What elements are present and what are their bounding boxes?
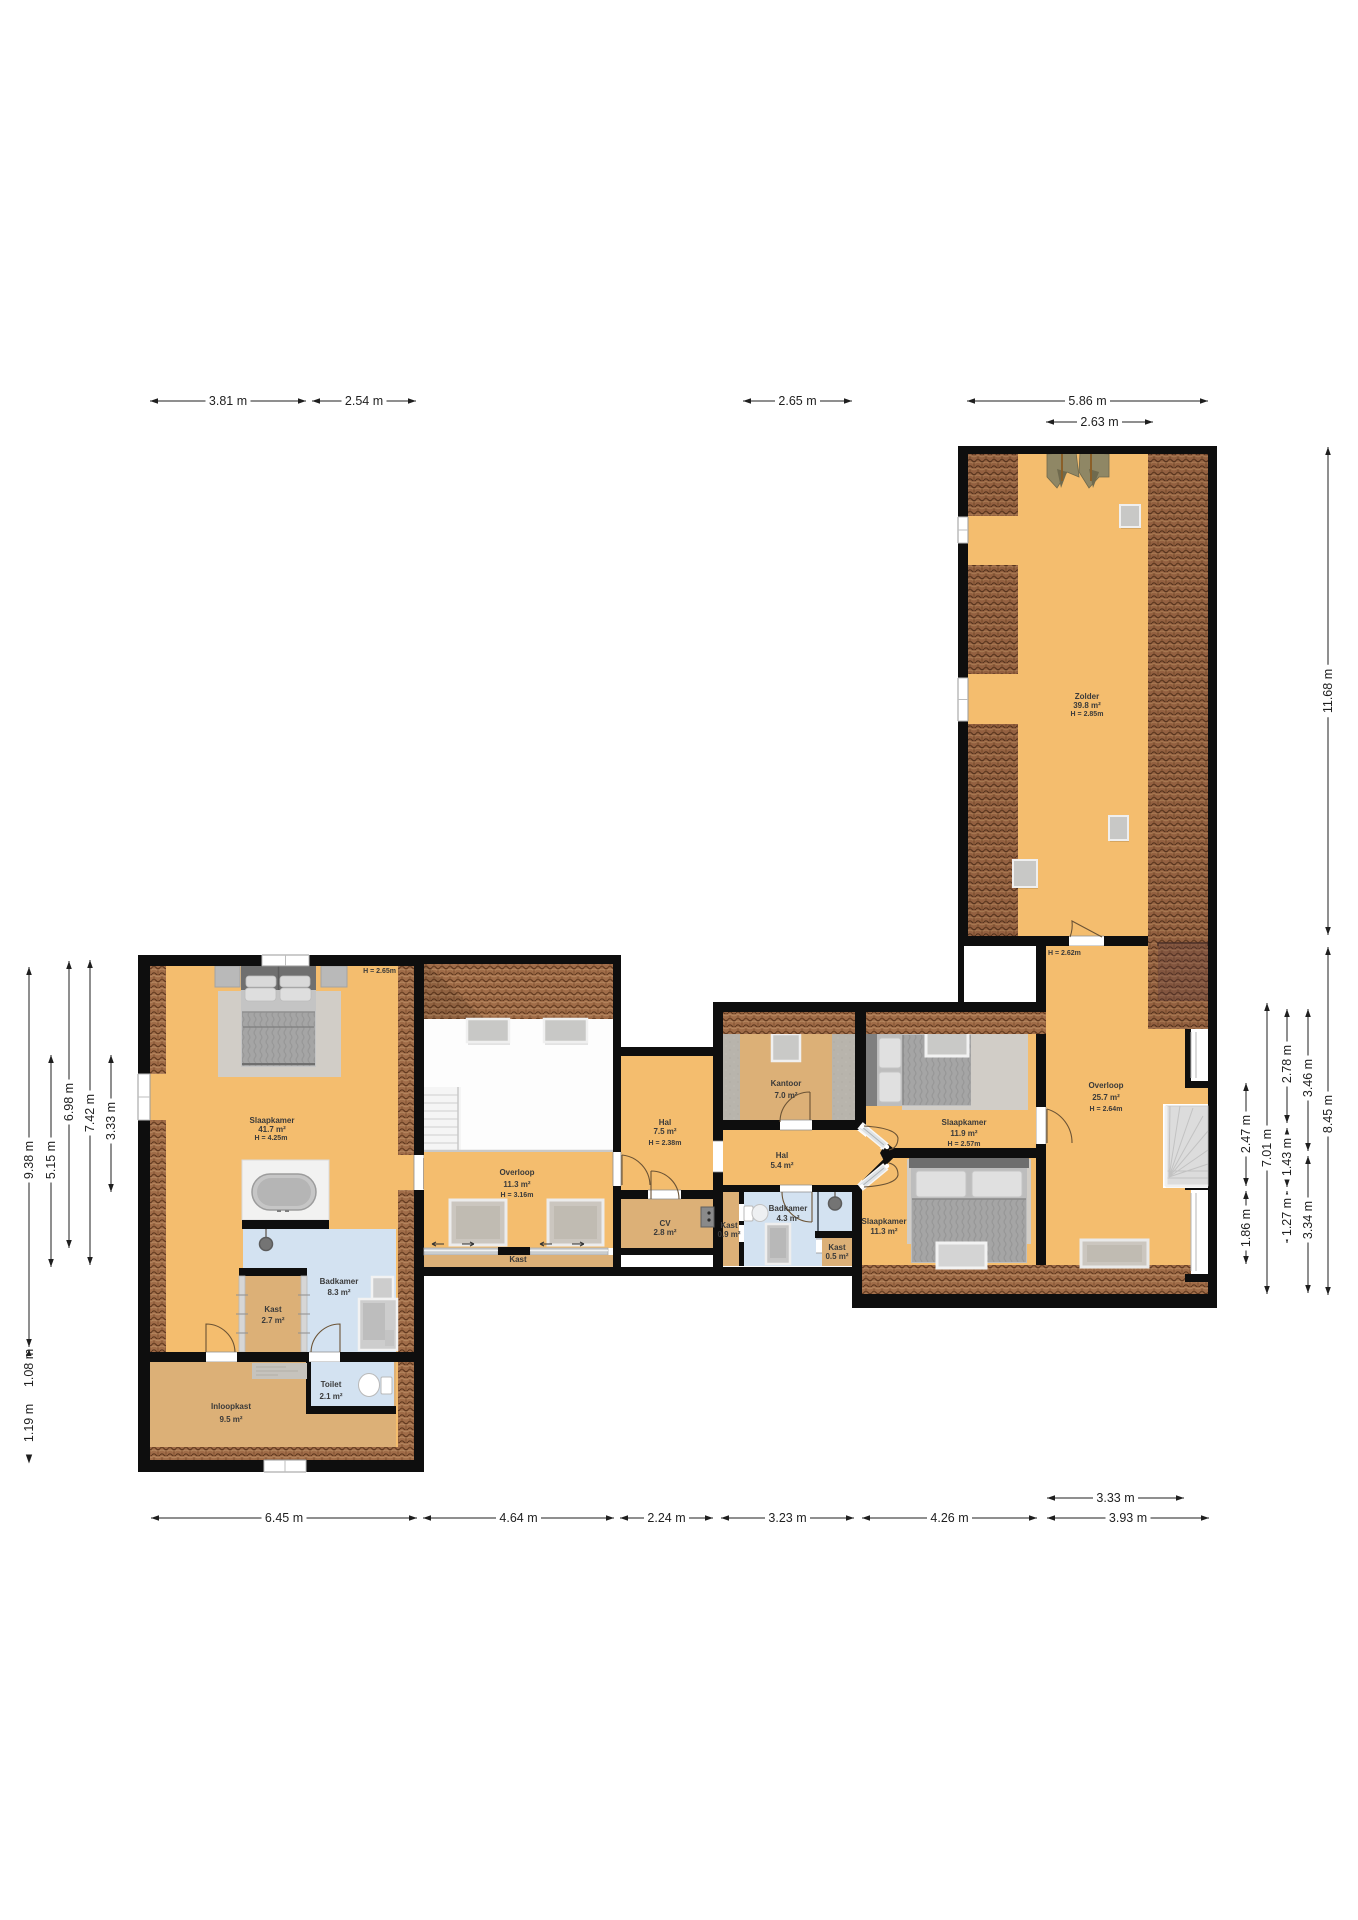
svg-text:CV: CV xyxy=(659,1219,671,1228)
svg-text:Kast: Kast xyxy=(509,1255,527,1264)
svg-text:H = 2.62m: H = 2.62m xyxy=(1048,950,1081,957)
svg-text:8.3 m²: 8.3 m² xyxy=(327,1288,350,1297)
svg-text:9.5 m²: 9.5 m² xyxy=(219,1415,242,1424)
svg-text:11.68 m: 11.68 m xyxy=(1321,669,1335,713)
svg-text:6.45 m: 6.45 m xyxy=(265,1511,303,1525)
svg-text:Hal: Hal xyxy=(659,1118,671,1127)
svg-text:5.86 m: 5.86 m xyxy=(1068,394,1106,408)
svg-text:H = 4.25m: H = 4.25m xyxy=(255,1135,288,1142)
svg-text:7.0 m²: 7.0 m² xyxy=(774,1091,797,1100)
svg-text:2.1 m²: 2.1 m² xyxy=(319,1392,342,1401)
svg-text:11.9 m²: 11.9 m² xyxy=(950,1129,977,1138)
svg-text:H = 2.85m: H = 2.85m xyxy=(1071,711,1104,718)
svg-text:Slaapkamer: Slaapkamer xyxy=(942,1118,987,1127)
svg-text:2.7 m²: 2.7 m² xyxy=(261,1316,284,1325)
svg-text:Kast: Kast xyxy=(720,1221,738,1230)
svg-text:4.64 m: 4.64 m xyxy=(499,1511,537,1525)
svg-text:Overloop: Overloop xyxy=(1088,1081,1123,1090)
svg-text:41.7 m²: 41.7 m² xyxy=(258,1125,286,1134)
svg-text:Toilet: Toilet xyxy=(321,1380,342,1389)
svg-text:3.33 m: 3.33 m xyxy=(104,1102,118,1140)
svg-text:3.33 m: 3.33 m xyxy=(1096,1491,1134,1505)
svg-text:2.78 m: 2.78 m xyxy=(1280,1045,1294,1083)
svg-text:1.19 m: 1.19 m xyxy=(22,1404,36,1442)
svg-text:2.63 m: 2.63 m xyxy=(1080,415,1118,429)
svg-text:11.3 m²: 11.3 m² xyxy=(870,1227,897,1236)
svg-text:Badkamer: Badkamer xyxy=(769,1204,808,1213)
svg-text:Overloop: Overloop xyxy=(499,1168,534,1177)
svg-text:3.23 m: 3.23 m xyxy=(768,1511,806,1525)
svg-text:Slaapkamer: Slaapkamer xyxy=(862,1217,907,1226)
svg-text:0.5 m²: 0.5 m² xyxy=(825,1252,848,1261)
svg-text:H = 2.38m: H = 2.38m xyxy=(649,1140,682,1147)
svg-text:4.3 m²: 4.3 m² xyxy=(776,1214,799,1223)
svg-text:H = 2.64m: H = 2.64m xyxy=(1090,1106,1123,1113)
svg-text:5.15 m: 5.15 m xyxy=(44,1141,58,1179)
svg-text:11.3 m²: 11.3 m² xyxy=(503,1180,530,1189)
svg-text:Kantoor: Kantoor xyxy=(771,1079,802,1088)
svg-text:5.4 m²: 5.4 m² xyxy=(770,1161,793,1170)
svg-text:39.8 m²: 39.8 m² xyxy=(1073,701,1101,710)
svg-text:0.9 m²: 0.9 m² xyxy=(717,1230,740,1239)
svg-text:Badkamer: Badkamer xyxy=(320,1277,359,1286)
svg-text:2.54 m: 2.54 m xyxy=(345,394,383,408)
svg-text:7.5 m²: 7.5 m² xyxy=(653,1127,676,1136)
svg-text:2.24 m: 2.24 m xyxy=(647,1511,685,1525)
svg-text:Kast: Kast xyxy=(264,1305,282,1314)
svg-text:9.38 m: 9.38 m xyxy=(22,1141,36,1179)
svg-text:Inloopkast: Inloopkast xyxy=(211,1402,251,1411)
svg-text:1.27 m: 1.27 m xyxy=(1280,1198,1294,1236)
svg-text:25.7 m²: 25.7 m² xyxy=(1092,1093,1120,1102)
svg-text:7.01 m: 7.01 m xyxy=(1260,1129,1274,1167)
svg-text:7.42 m: 7.42 m xyxy=(83,1094,97,1132)
svg-text:Zolder: Zolder xyxy=(1075,692,1099,701)
svg-text:Slaapkamer: Slaapkamer xyxy=(250,1116,295,1125)
svg-text:8.45 m: 8.45 m xyxy=(1321,1095,1335,1133)
svg-text:1.43 m: 1.43 m xyxy=(1280,1138,1294,1176)
svg-text:3.93 m: 3.93 m xyxy=(1109,1511,1147,1525)
svg-text:2.8 m²: 2.8 m² xyxy=(653,1228,676,1237)
svg-text:2.47 m: 2.47 m xyxy=(1239,1115,1253,1153)
svg-text:3.34 m: 3.34 m xyxy=(1301,1201,1315,1239)
svg-text:Kast: Kast xyxy=(828,1243,846,1252)
svg-text:2.65 m: 2.65 m xyxy=(778,394,816,408)
svg-text:H = 2.57m: H = 2.57m xyxy=(948,1141,981,1148)
svg-text:H = 2.65m: H = 2.65m xyxy=(363,968,396,975)
svg-text:Hal: Hal xyxy=(776,1151,788,1160)
svg-text:1.86 m: 1.86 m xyxy=(1239,1209,1253,1247)
svg-text:6.98 m: 6.98 m xyxy=(62,1083,76,1121)
svg-text:H = 3.16m: H = 3.16m xyxy=(501,1192,534,1199)
svg-text:4.26 m: 4.26 m xyxy=(930,1511,968,1525)
svg-text:3.81 m: 3.81 m xyxy=(209,394,247,408)
svg-text:3.46 m: 3.46 m xyxy=(1301,1059,1315,1097)
